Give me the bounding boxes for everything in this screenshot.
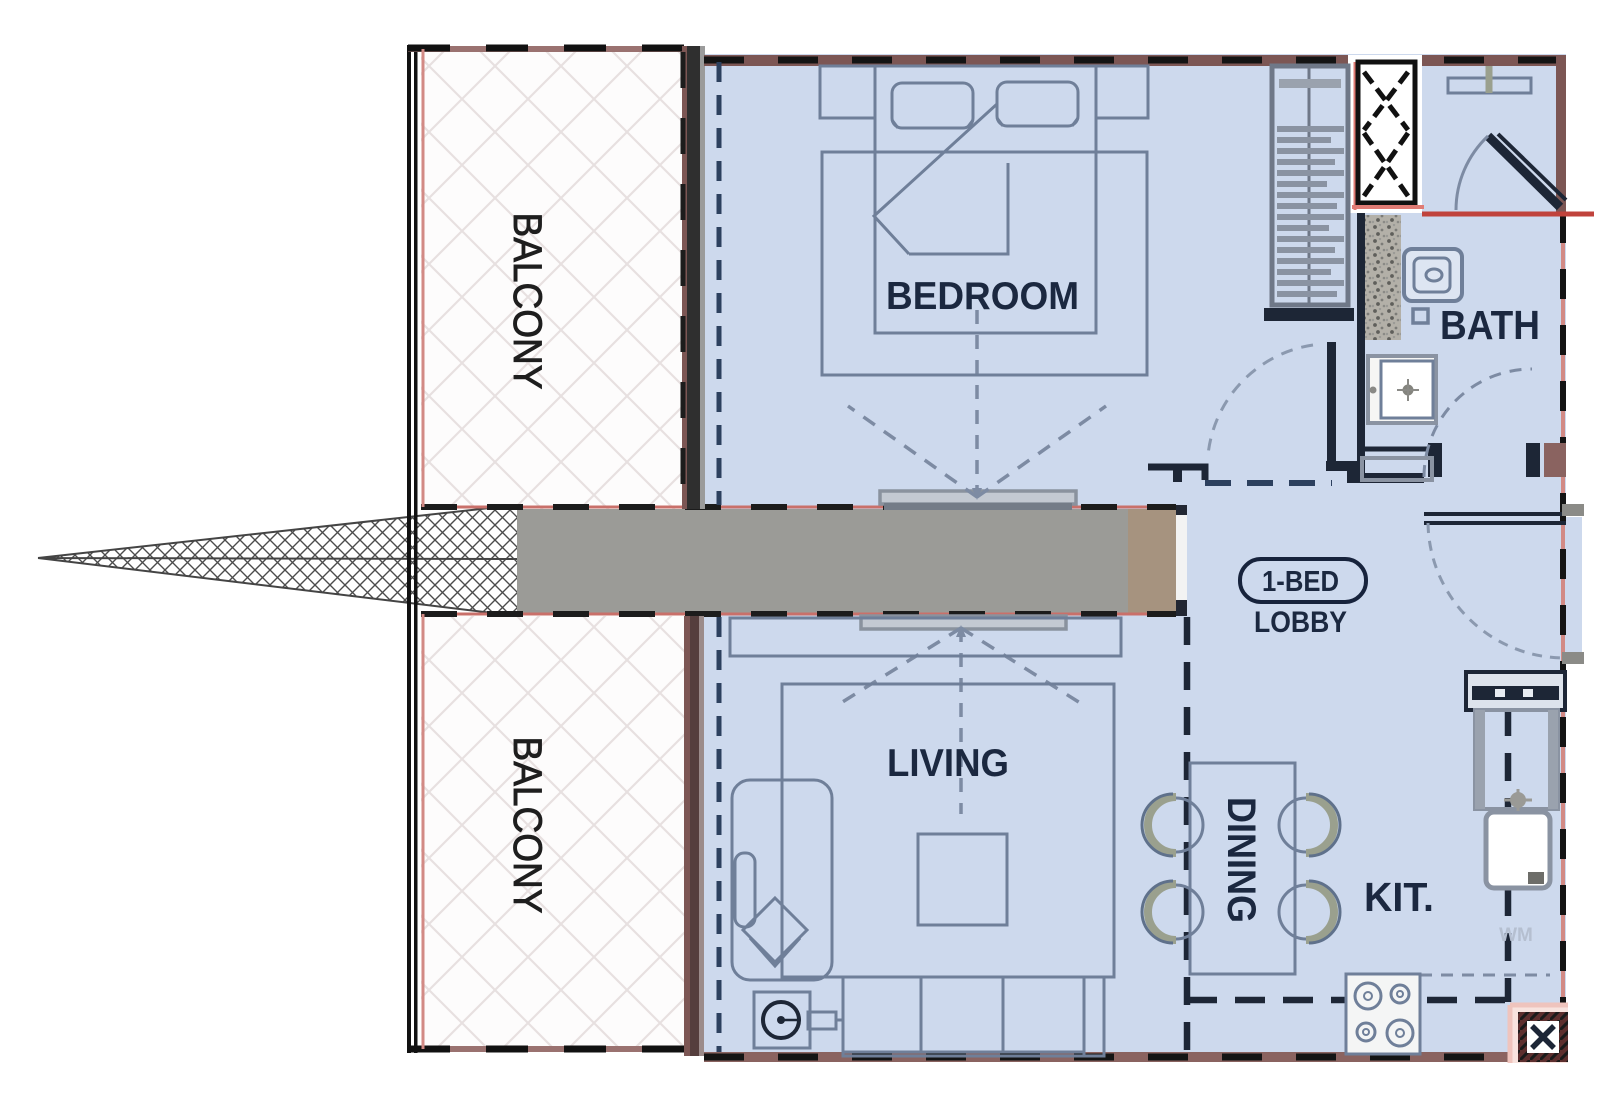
svg-text:LIVING: LIVING bbox=[887, 742, 1009, 785]
svg-text:1-BED: 1-BED bbox=[1262, 566, 1339, 598]
svg-text:WM: WM bbox=[1499, 925, 1533, 946]
svg-text:DINING: DINING bbox=[1219, 797, 1263, 923]
svg-text:KIT.: KIT. bbox=[1364, 874, 1434, 920]
svg-text:BALCONY: BALCONY bbox=[505, 213, 549, 390]
svg-text:BALCONY: BALCONY bbox=[505, 737, 549, 914]
svg-text:BEDROOM: BEDROOM bbox=[886, 275, 1079, 318]
svg-text:BATH: BATH bbox=[1440, 302, 1540, 348]
svg-text:LOBBY: LOBBY bbox=[1254, 606, 1347, 639]
